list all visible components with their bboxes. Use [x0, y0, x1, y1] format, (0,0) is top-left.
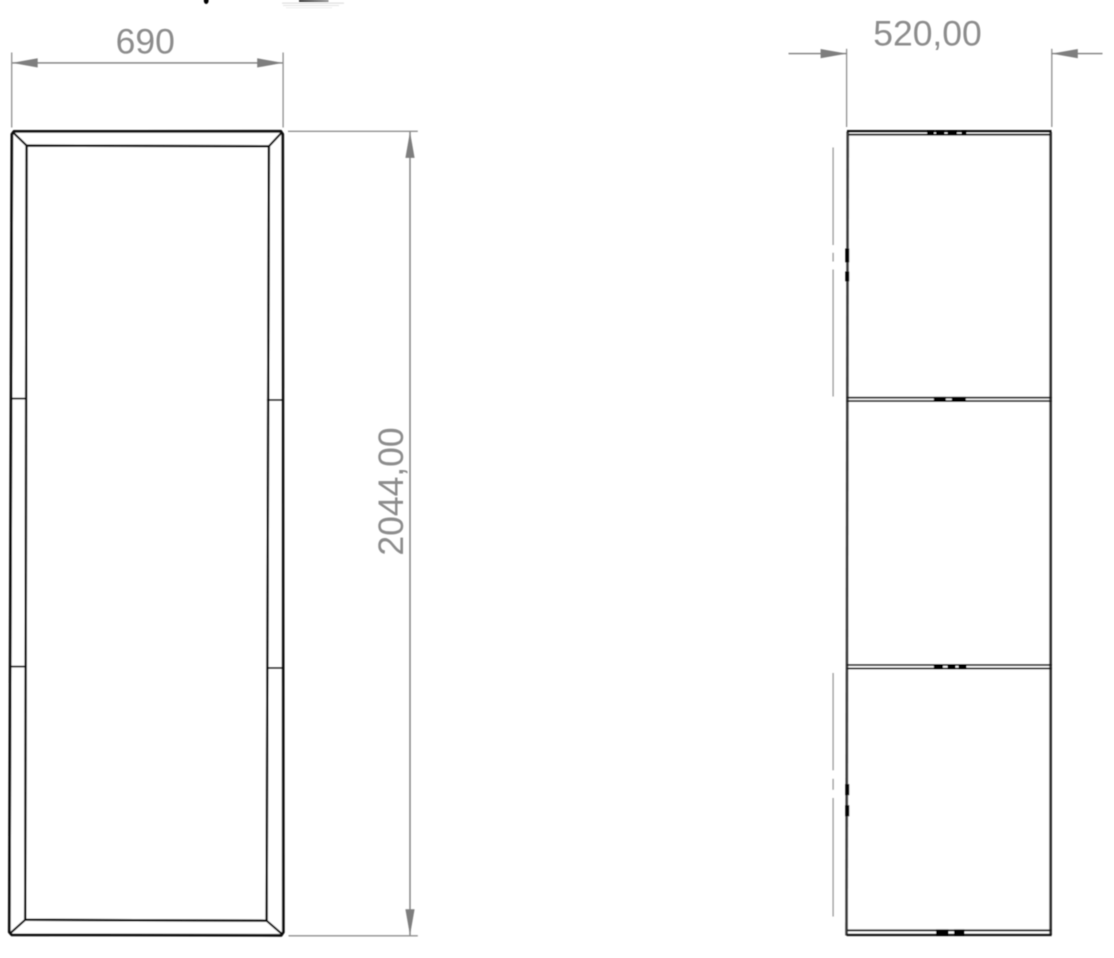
svg-text:2044,00: 2044,00: [371, 427, 411, 555]
svg-text:520,00: 520,00: [873, 13, 982, 53]
svg-text:690: 690: [116, 22, 175, 62]
